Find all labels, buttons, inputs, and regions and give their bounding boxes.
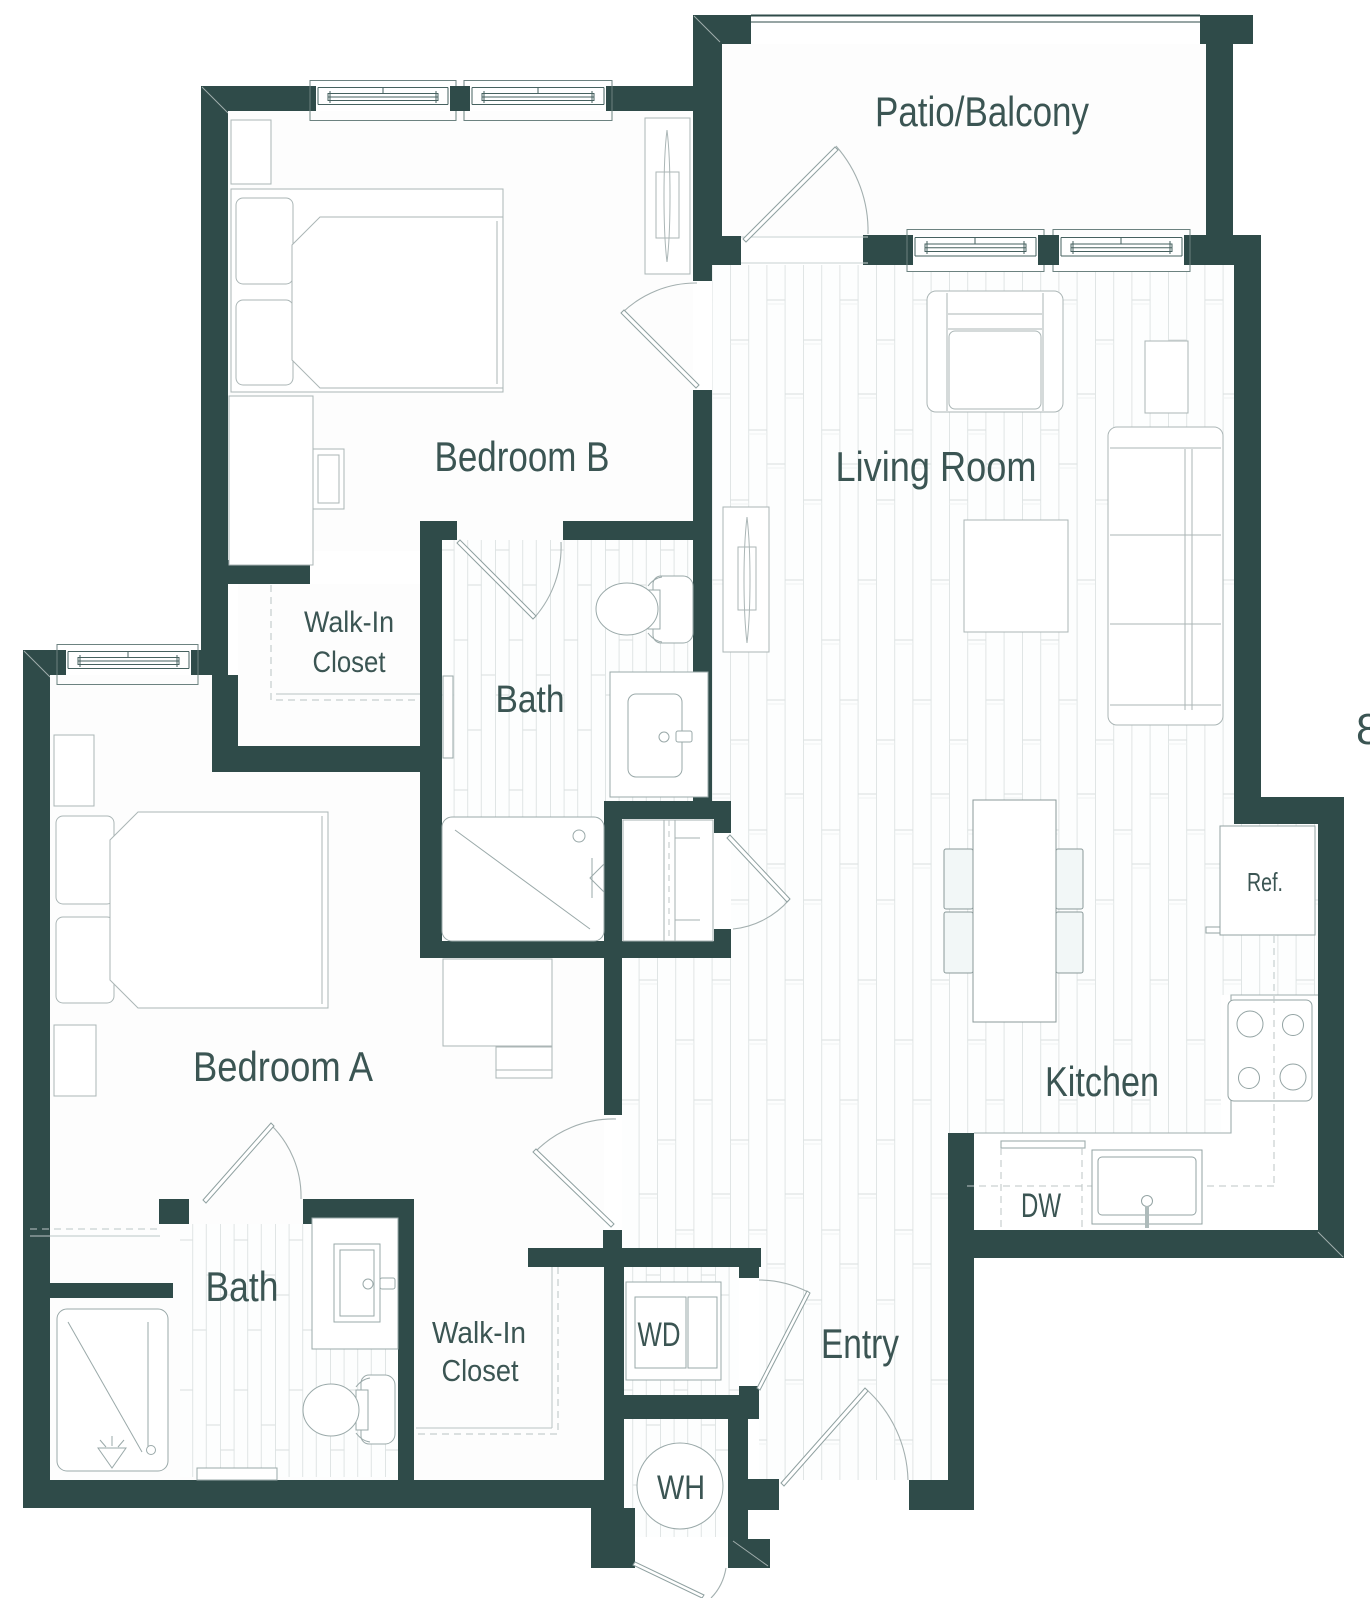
svg-text:Ref.: Ref.: [1247, 867, 1283, 897]
svg-text:Closet: Closet: [442, 1353, 519, 1388]
svg-text:DW: DW: [1021, 1187, 1061, 1225]
svg-text:Entry: Entry: [821, 1320, 899, 1367]
svg-text:WH: WH: [657, 1469, 705, 1507]
svg-text:Bath: Bath: [496, 679, 565, 721]
svg-text:Walk-In: Walk-In: [304, 606, 394, 639]
svg-text:WD: WD: [638, 1316, 681, 1354]
svg-text:Kitchen: Kitchen: [1045, 1058, 1159, 1105]
svg-text:Living Room: Living Room: [836, 443, 1037, 490]
svg-text:Bath: Bath: [206, 1263, 279, 1310]
svg-text:Closet: Closet: [313, 646, 387, 679]
svg-text:Walk-In: Walk-In: [432, 1315, 526, 1350]
svg-text:Bedroom A: Bedroom A: [193, 1043, 373, 1090]
svg-text:Bedroom B: Bedroom B: [435, 433, 610, 480]
svg-text:Patio/Balcony: Patio/Balcony: [875, 88, 1089, 135]
svg-text:8: 8: [1356, 705, 1370, 754]
